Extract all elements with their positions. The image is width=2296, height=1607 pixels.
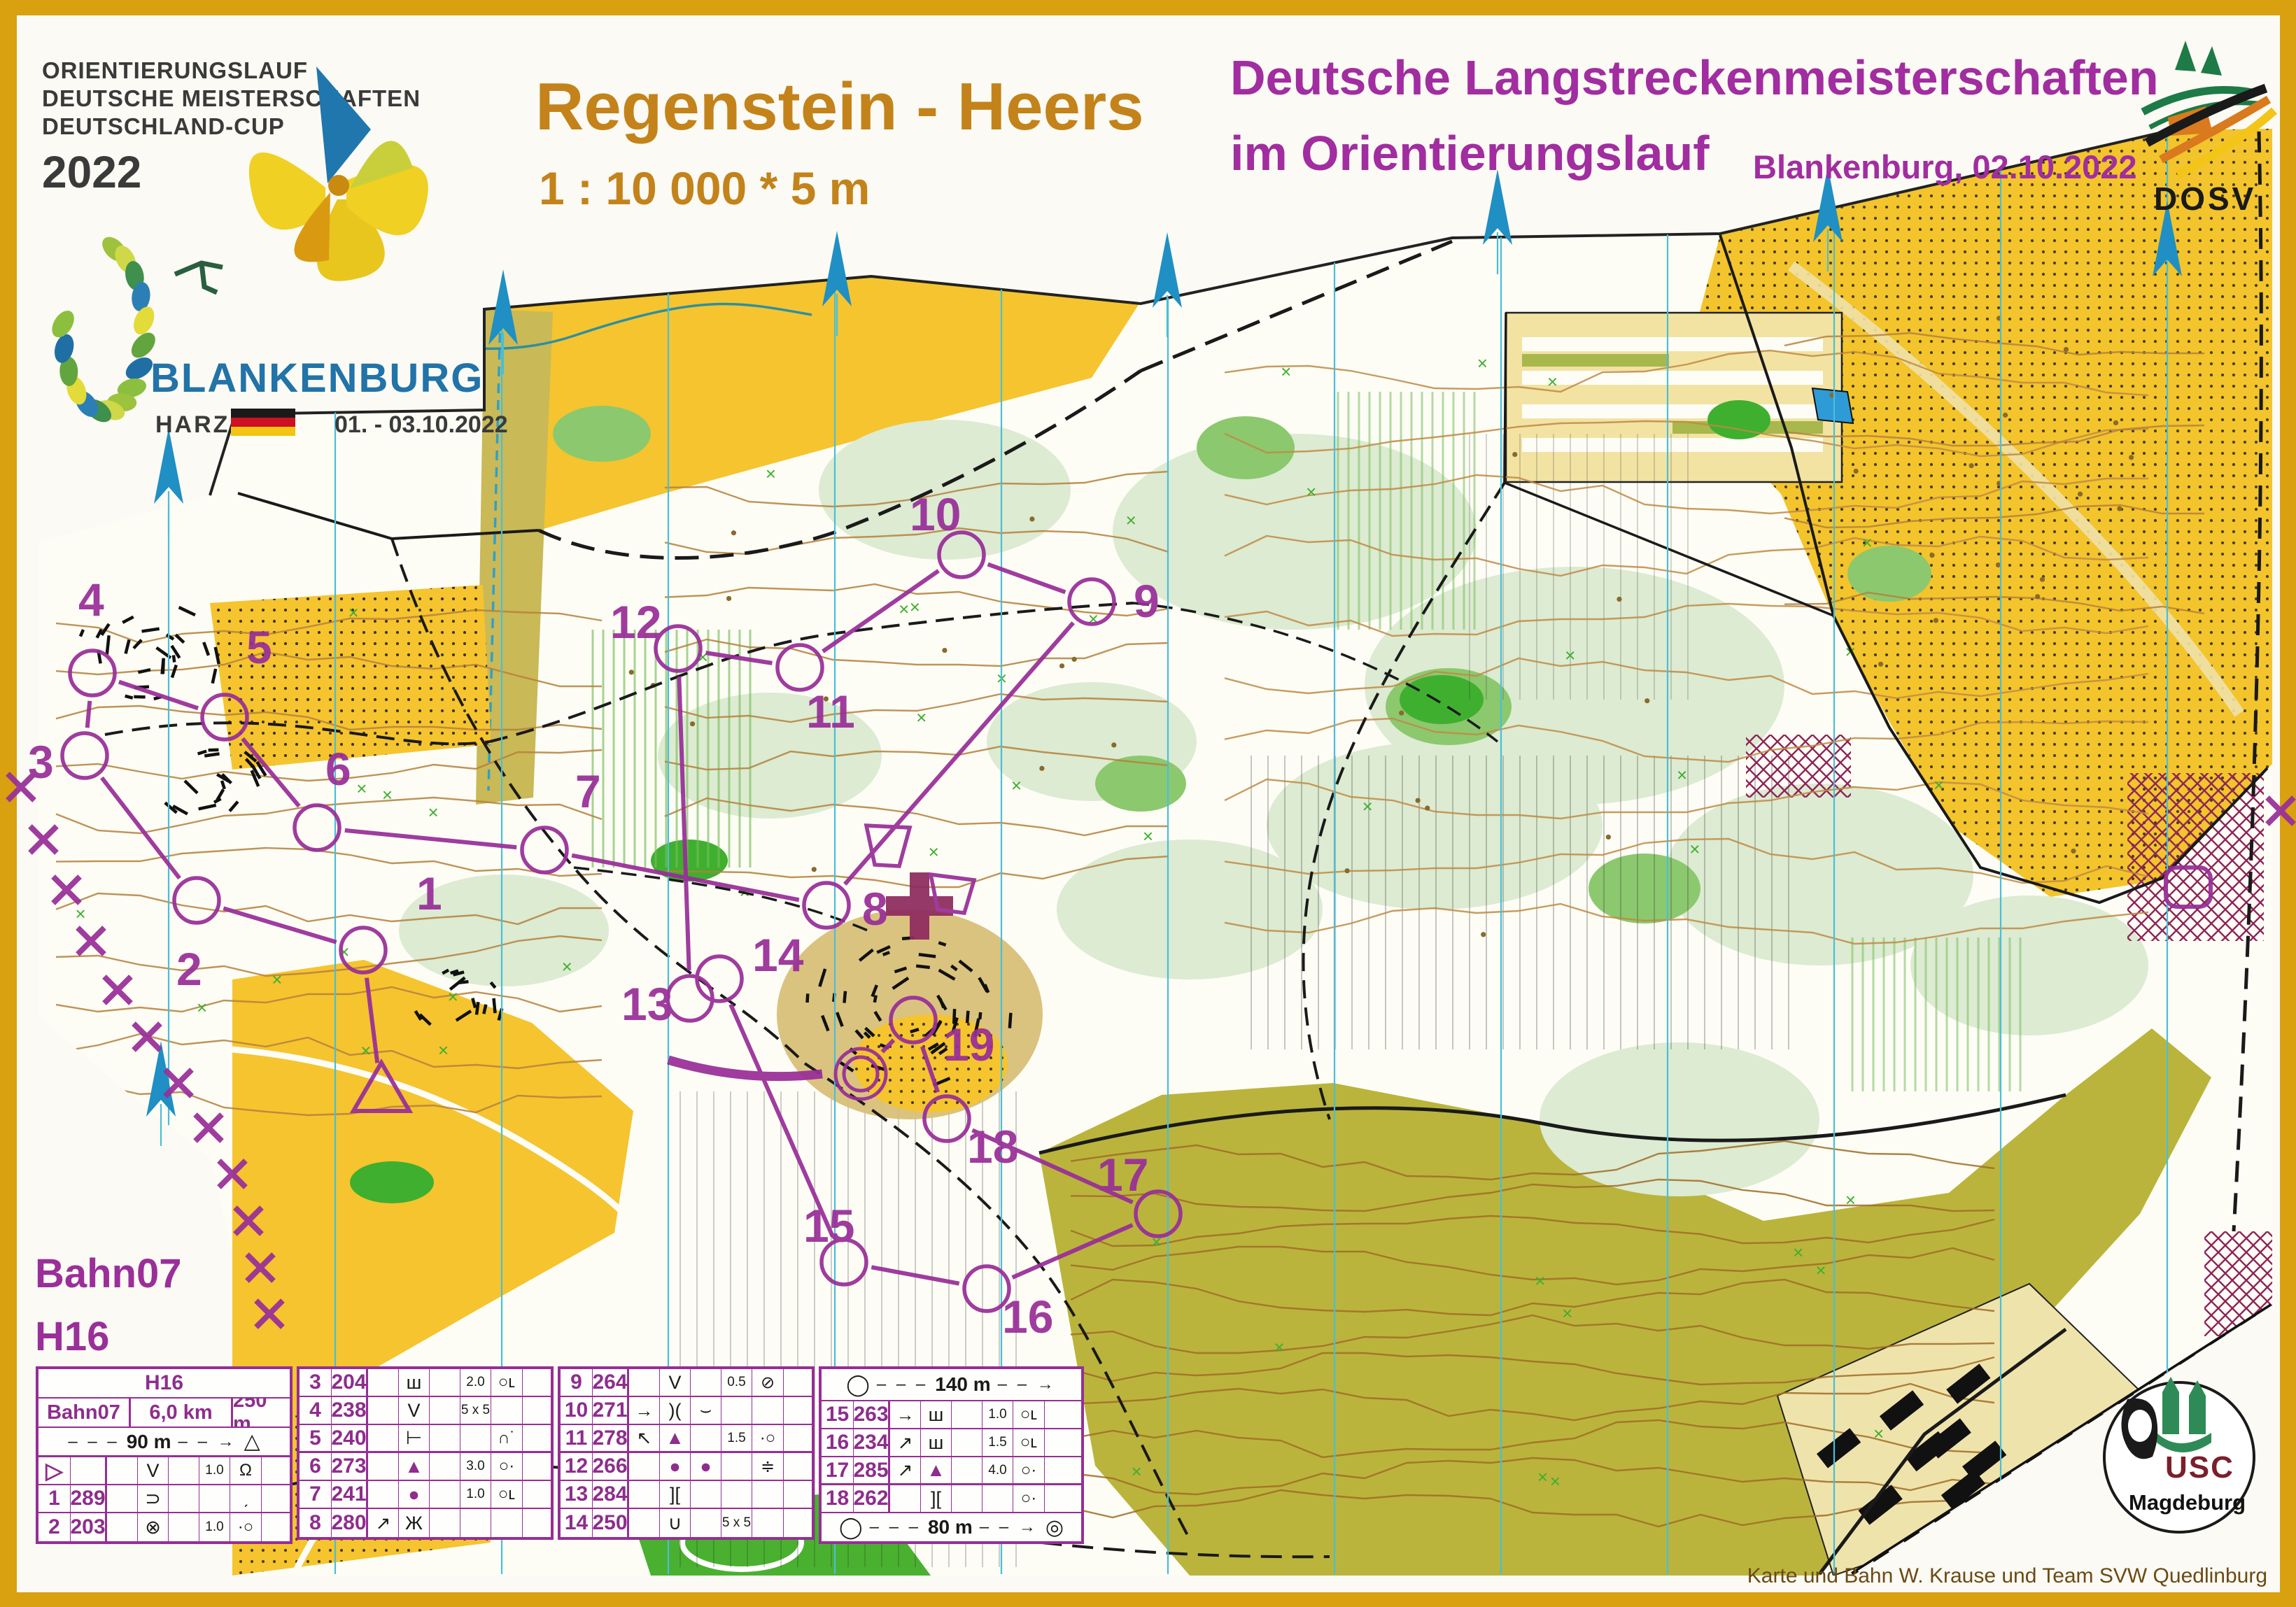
control-row: 17285↗▲4.0○· (822, 1457, 1081, 1485)
control-row: 6273▲3.0○· (300, 1453, 551, 1481)
description-symbol (629, 1509, 660, 1537)
control-code: 240 (332, 1425, 368, 1451)
description-symbol (169, 1513, 199, 1541)
description-symbol: ○ʟ (1013, 1429, 1045, 1456)
description-symbol: 1.5 (721, 1425, 752, 1451)
control-number-label: 15 (803, 1200, 854, 1252)
dash-decoration: – – → (980, 1517, 1038, 1537)
club-city: Magdeburg (2129, 1490, 2246, 1515)
control-code: 203 (71, 1513, 107, 1541)
description-symbol: 4.0 (983, 1457, 1013, 1483)
control-code: 289 (71, 1485, 107, 1512)
description-symbol (368, 1481, 399, 1508)
control-row: 16234↗ш1.5○ʟ (822, 1429, 1081, 1457)
svg-text:×: × (1274, 1337, 1285, 1358)
description-symbol (262, 1457, 290, 1484)
dash-decoration: – – – (877, 1375, 928, 1394)
finish-icon: ◎ (1045, 1515, 1064, 1540)
control-card-section-4: ◯ – – – 140 m – – → 15263→ш1.0○ʟ16234↗ш1… (819, 1366, 1084, 1544)
control-number-label: 18 (967, 1121, 1018, 1173)
svg-text:×: × (1677, 765, 1687, 786)
svg-text:×: × (766, 463, 776, 484)
svg-text:×: × (1126, 510, 1136, 531)
control-number: 3 (300, 1369, 332, 1396)
description-symbol (107, 1457, 138, 1484)
description-symbol: 0.5 (721, 1369, 752, 1396)
description-symbol: ○· (1013, 1485, 1045, 1512)
description-symbol (784, 1481, 812, 1508)
control-number: 6 (300, 1453, 332, 1480)
course-class-label: H16 (35, 1314, 109, 1359)
description-symbol: ⊗ (138, 1513, 169, 1541)
description-symbol (523, 1425, 551, 1451)
description-symbol (460, 1509, 491, 1537)
control-code: 241 (332, 1481, 368, 1508)
control-code: 285 (854, 1457, 890, 1483)
control-row: 11278↖▲1.5·○ (561, 1425, 812, 1453)
svg-text:×: × (1537, 1466, 1548, 1487)
card-course-name: Bahn07 (38, 1399, 131, 1427)
control-number-label: 14 (752, 929, 804, 981)
host-dates: 01. - 03.10.2022 (334, 411, 508, 438)
control-row: 18262][○· (822, 1485, 1081, 1513)
svg-text:×: × (1845, 1189, 1856, 1210)
description-symbol: V (138, 1457, 169, 1484)
control-number-label: 6 (325, 743, 351, 795)
description-symbol: 1.0 (199, 1457, 230, 1484)
description-symbol (721, 1481, 752, 1508)
control-number: 2 (38, 1513, 71, 1541)
description-symbol: ⊃ (138, 1485, 169, 1512)
control-code: 238 (332, 1397, 368, 1424)
start-triangle-icon: △ (244, 1429, 260, 1454)
veg-stripes (588, 630, 756, 868)
control-row: 12266●●≑ (561, 1453, 812, 1481)
description-symbol: ][ (921, 1485, 952, 1512)
plantation-rows (1246, 756, 1791, 1049)
control-number: ▷ (38, 1457, 71, 1484)
svg-text:×: × (1535, 1270, 1545, 1291)
control-code (71, 1457, 107, 1484)
description-symbol (368, 1397, 399, 1424)
control-number-label: 7 (575, 765, 601, 817)
description-symbol: 3.0 (460, 1453, 491, 1480)
control-code: 271 (593, 1397, 629, 1424)
description-symbol (430, 1425, 460, 1451)
description-symbol (491, 1509, 523, 1537)
description-symbol: ▲ (399, 1453, 430, 1480)
control-number-label: 12 (610, 596, 661, 648)
control-code: 204 (332, 1369, 368, 1396)
description-symbol: ш (921, 1429, 952, 1456)
control-number: 15 (822, 1401, 854, 1428)
description-symbol: V (399, 1397, 430, 1424)
description-symbol: ○ʟ (491, 1481, 523, 1508)
description-symbol: ▲ (921, 1457, 952, 1483)
svg-text:×: × (1306, 481, 1316, 502)
map-title: Regenstein - Heers (535, 69, 1144, 144)
control-number: 5 (300, 1425, 332, 1451)
svg-text:×: × (428, 802, 439, 823)
description-symbol: ○· (1013, 1457, 1045, 1483)
description-symbol: ↗ (890, 1457, 921, 1483)
svg-text:×: × (910, 596, 920, 617)
castle-rock (777, 909, 1043, 1119)
description-symbol: ● (399, 1481, 430, 1508)
control-code: 280 (332, 1509, 368, 1537)
control-row: 15263→ш1.0○ʟ (822, 1401, 1081, 1429)
scanned-map-sheet: ××××××××××××××××××××××××××××××××××××××××… (0, 0, 2296, 1607)
description-symbol (1045, 1401, 1081, 1428)
description-symbol (368, 1453, 399, 1480)
description-symbol (629, 1453, 660, 1480)
dash-decoration: – – → (998, 1375, 1057, 1394)
description-symbol: 2.0 (460, 1369, 491, 1396)
description-symbol (952, 1485, 983, 1512)
description-symbol: ↗ (890, 1429, 921, 1456)
description-symbol: 1.0 (983, 1401, 1013, 1428)
description-symbol: 1.0 (460, 1481, 491, 1508)
control-number-label: 13 (621, 978, 672, 1030)
description-symbol: → (629, 1397, 660, 1424)
club-name: USC (2165, 1450, 2234, 1485)
control-card-section-3: 9264V0.5⊘10271→)(⌣11278↖▲1.5·○12266●●≑13… (558, 1366, 815, 1540)
svg-text:×: × (1011, 774, 1022, 795)
host-region: HARZ (155, 411, 230, 438)
svg-text:×: × (899, 598, 909, 619)
control-number: 12 (561, 1453, 593, 1480)
description-symbol (430, 1397, 460, 1424)
control-number: 11 (561, 1425, 593, 1451)
host-city: BLANKENBURG (150, 355, 484, 401)
svg-text:×: × (448, 986, 458, 1007)
description-symbol (629, 1481, 660, 1508)
control-code: 250 (593, 1509, 629, 1537)
venue-date: Blankenburg, 02.10.2022 (1753, 148, 2137, 185)
control-number: 16 (822, 1429, 854, 1456)
svg-text:×: × (1873, 1423, 1884, 1444)
description-symbol (1045, 1485, 1081, 1512)
control-row: 2203⊗1.0·○ (38, 1513, 290, 1541)
control-row: 10271→)(⌣ (561, 1397, 812, 1425)
dash-decoration: – – – (68, 1432, 119, 1452)
control-number-label: 8 (862, 883, 888, 935)
description-symbol (1045, 1457, 1081, 1483)
svg-text:×: × (1281, 361, 1291, 382)
control-code: 273 (332, 1453, 368, 1480)
control-number-label: 1 (416, 868, 442, 919)
description-symbol (784, 1453, 812, 1480)
credit-line: Karte und Bahn W. Krause und Team SVW Qu… (1747, 1564, 2267, 1587)
out-of-bounds (1746, 735, 1851, 798)
control-number-label: 9 (1134, 575, 1160, 627)
course-name-label: Bahn07 (35, 1251, 182, 1296)
description-symbol (430, 1453, 460, 1480)
control-row: 9264V0.5⊘ (561, 1369, 812, 1397)
exchange-distance-value: 140 m (935, 1373, 990, 1396)
control-code: 262 (854, 1485, 890, 1512)
card-finish-distance: ◯ – – – 80 m – – → ◎ (822, 1512, 1081, 1541)
description-symbol: ][ (660, 1481, 691, 1508)
svg-text:×: × (1816, 1260, 1826, 1281)
description-symbol (523, 1397, 551, 1424)
description-symbol: → (890, 1401, 921, 1428)
description-symbol: 5 x 5 (460, 1397, 491, 1424)
description-symbol (752, 1481, 784, 1508)
description-symbol: )( (660, 1397, 691, 1424)
control-code: 284 (593, 1481, 629, 1508)
description-symbol: 1.5 (983, 1429, 1013, 1456)
german-flag-icon (231, 409, 295, 436)
description-symbol: ∪ (660, 1509, 691, 1537)
card-course-climb: 250 m (233, 1399, 290, 1427)
description-symbol (721, 1397, 752, 1424)
description-symbol: ● (691, 1453, 721, 1480)
control-row: 13284][ (561, 1481, 812, 1509)
svg-text:×: × (1088, 608, 1099, 629)
description-symbol: ш (921, 1401, 952, 1428)
series-line-3: DEUTSCHLAND-CUP (42, 113, 285, 139)
description-symbol (523, 1481, 551, 1508)
svg-text:×: × (197, 997, 207, 1018)
description-symbol (721, 1453, 752, 1480)
svg-text:×: × (916, 707, 927, 728)
description-symbol (691, 1369, 721, 1396)
control-number: 7 (300, 1481, 332, 1508)
description-symbol: ○ʟ (1013, 1401, 1045, 1428)
control-code: 263 (854, 1401, 890, 1428)
card-class: H16 (145, 1371, 183, 1395)
description-symbol (523, 1453, 551, 1480)
description-symbol: Ж (399, 1509, 430, 1537)
svg-text:×: × (1565, 644, 1575, 665)
description-symbol: ш (399, 1369, 430, 1396)
description-symbol (691, 1509, 721, 1537)
control-row: 8280↗Ж (300, 1509, 551, 1537)
control-number-label: 10 (910, 488, 961, 540)
svg-text:×: × (929, 842, 939, 863)
description-symbol (368, 1369, 399, 1396)
finish-distance-value: 80 m (928, 1516, 973, 1538)
control-number: 9 (561, 1369, 593, 1396)
description-symbol (952, 1401, 983, 1428)
description-symbol: ⊘ (752, 1369, 784, 1396)
description-symbol (368, 1425, 399, 1451)
control-number-label: 4 (78, 574, 104, 625)
control-code: 266 (593, 1453, 629, 1480)
control-number-label: 19 (943, 1019, 994, 1070)
card-start-distance: – – – 90 m – – → △ (38, 1428, 290, 1457)
svg-text:×: × (1547, 371, 1558, 392)
description-symbol: ↗ (368, 1509, 399, 1537)
description-symbol (491, 1397, 523, 1424)
description-symbol (430, 1481, 460, 1508)
description-symbol: V (660, 1369, 691, 1396)
description-symbol: ▲ (660, 1425, 691, 1451)
control-number-label: 16 (1002, 1291, 1053, 1343)
control-number: 4 (300, 1397, 332, 1424)
control-number-label: 2 (176, 943, 202, 995)
control-number: 14 (561, 1509, 593, 1537)
description-symbol (629, 1369, 660, 1396)
description-symbol (199, 1485, 230, 1512)
description-symbol (691, 1481, 721, 1508)
description-symbol (523, 1509, 551, 1537)
description-symbol (262, 1513, 290, 1541)
control-row: 5240⊢∩˙ (300, 1425, 551, 1453)
description-symbol (523, 1369, 551, 1396)
control-row: 1289⊃ˏ (38, 1485, 290, 1513)
control-row: 3204ш2.0○ʟ (300, 1369, 551, 1397)
control-code: 278 (593, 1425, 629, 1451)
description-symbol (107, 1485, 138, 1512)
description-symbol (1045, 1429, 1081, 1456)
control-number-label: 17 (1097, 1149, 1148, 1201)
control-card-section-1: H16 Bahn07 6,0 km 250 m – – – 90 m – – →… (36, 1366, 293, 1544)
card-course-length: 6,0 km (131, 1399, 233, 1427)
description-symbol (752, 1397, 784, 1424)
control-card-section-2: 3204ш2.0○ʟ4238V5 x 55240⊢∩˙6273▲3.0○·724… (297, 1366, 554, 1540)
description-symbol (460, 1425, 491, 1451)
svg-text:×: × (1689, 838, 1700, 859)
series-year: 2022 (42, 147, 141, 197)
svg-text:×: × (1562, 1303, 1572, 1324)
description-symbol: ˏ (230, 1485, 262, 1512)
description-symbol (430, 1509, 460, 1537)
description-symbol (784, 1369, 812, 1396)
description-symbol: Ω (230, 1457, 262, 1484)
map-scale: 1 : 10 000 * 5 m (539, 162, 870, 214)
control-number: 8 (300, 1509, 332, 1537)
description-symbol (262, 1485, 290, 1512)
description-symbol (952, 1457, 983, 1483)
series-line-2: DEUTSCHE MEISTERSCHAFTEN (42, 85, 421, 111)
svg-text:×: × (1934, 774, 1944, 795)
description-symbol (169, 1457, 199, 1484)
description-symbol (983, 1485, 1013, 1512)
card-class-header: H16 (38, 1369, 290, 1399)
svg-text:×: × (76, 903, 86, 924)
description-symbol (430, 1369, 460, 1396)
series-line-1: ORIENTIERUNGSLAUF (42, 57, 308, 83)
svg-text:×: × (360, 1040, 371, 1061)
svg-text:×: × (1362, 795, 1373, 816)
control-row: 7241●1.0○ʟ (300, 1481, 551, 1509)
description-symbol: ≑ (752, 1453, 784, 1480)
description-symbol: ⌣ (691, 1397, 721, 1424)
circle-icon: ◯ (846, 1373, 870, 1397)
svg-text:×: × (272, 969, 282, 990)
card-course-info: Bahn07 6,0 km 250 m (38, 1399, 290, 1428)
control-row: 14250∪5 x 5 (561, 1509, 812, 1537)
svg-text:×: × (562, 956, 572, 977)
svg-text:×: × (1862, 532, 1873, 553)
circle-icon: ◯ (839, 1515, 863, 1540)
description-symbol (890, 1485, 921, 1512)
federation-acronym: DOSV (2154, 180, 2256, 217)
control-number: 1 (38, 1485, 71, 1512)
svg-text:×: × (1477, 353, 1488, 374)
description-symbol: ·○ (230, 1513, 262, 1541)
description-symbol (107, 1513, 138, 1541)
control-code: 264 (593, 1369, 629, 1396)
card-exchange-distance: ◯ – – – 140 m – – → (822, 1369, 1081, 1401)
description-symbol (784, 1425, 812, 1451)
control-number-label: 11 (806, 686, 855, 737)
description-symbol: ○· (491, 1453, 523, 1480)
championship-line2: im Orientierungslauf (1230, 126, 1710, 180)
control-code: 234 (854, 1429, 890, 1456)
dash-decoration: – – → (178, 1432, 237, 1452)
start-distance-value: 90 m (127, 1431, 171, 1453)
control-number: 10 (561, 1397, 593, 1424)
description-symbol: 1.0 (199, 1513, 230, 1541)
description-symbol (784, 1509, 812, 1537)
svg-text:×: × (348, 602, 358, 623)
control-row: 4238V5 x 5 (300, 1397, 551, 1425)
description-symbol: 5 x 5 (721, 1509, 752, 1537)
control-number: 18 (822, 1485, 854, 1512)
description-symbol: ⊢ (399, 1425, 430, 1451)
description-symbol: ↖ (629, 1425, 660, 1451)
description-symbol (952, 1429, 983, 1456)
description-symbol: ·○ (752, 1425, 784, 1451)
svg-text:×: × (1143, 826, 1153, 847)
control-number-label: 5 (246, 621, 272, 673)
control-row: ▷V1.0Ω (38, 1457, 290, 1485)
svg-text:×: × (438, 1040, 449, 1061)
svg-text:×: × (382, 784, 393, 805)
description-symbol: ● (660, 1453, 691, 1480)
description-symbol: ○ʟ (491, 1369, 523, 1396)
dash-decoration: – – – (870, 1517, 921, 1537)
championship-line1: Deutsche Langstreckenmeisterschaften (1230, 50, 2159, 105)
description-symbol (752, 1509, 784, 1537)
svg-text:×: × (1793, 1242, 1803, 1263)
description-symbol (691, 1425, 721, 1451)
svg-text:×: × (1550, 1471, 1561, 1492)
description-symbol (169, 1485, 199, 1512)
svg-text:×: × (356, 778, 367, 799)
description-symbol: ∩˙ (491, 1425, 523, 1451)
control-number: 17 (822, 1457, 854, 1483)
control-number: 13 (561, 1481, 593, 1508)
description-symbol (784, 1397, 812, 1424)
svg-text:×: × (1132, 1461, 1142, 1482)
